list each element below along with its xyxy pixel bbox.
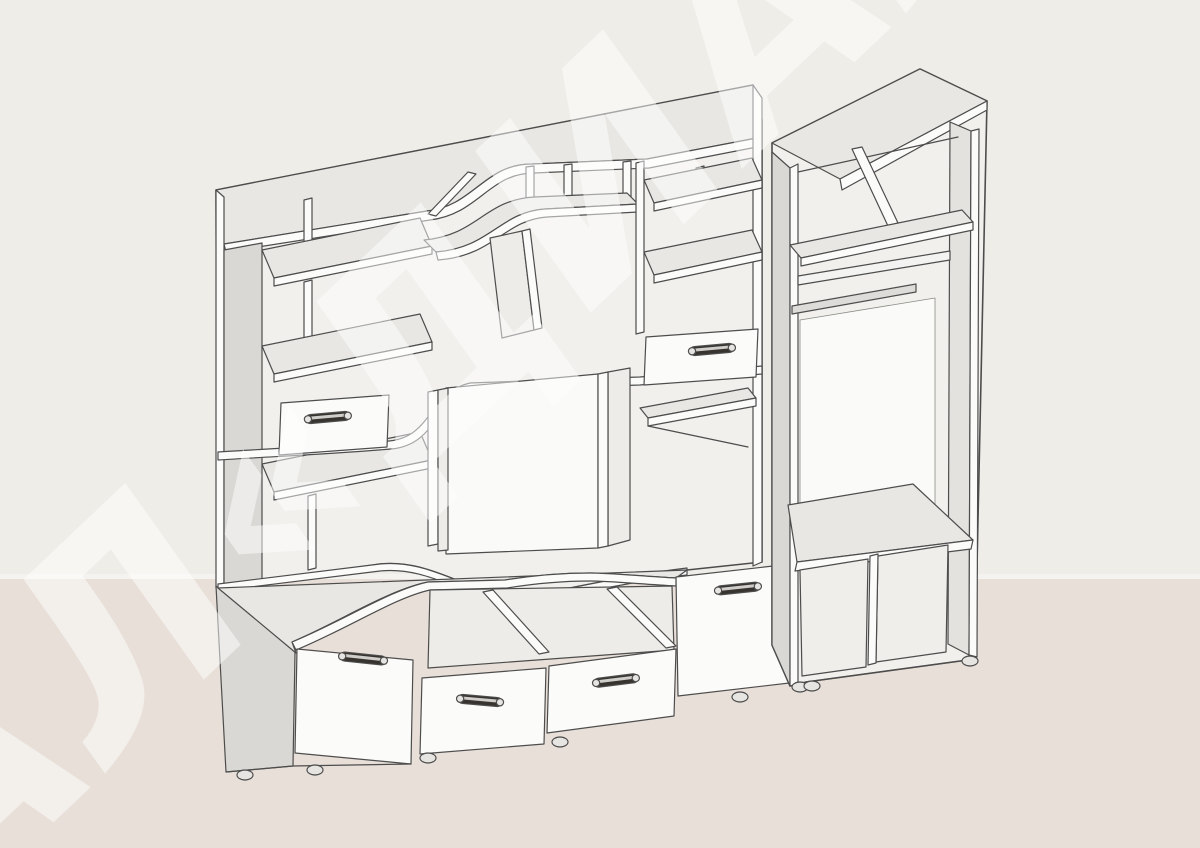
- wardrobe-right-front-edge: [969, 129, 979, 657]
- foot: [552, 737, 568, 747]
- foot: [307, 765, 323, 775]
- foot: [732, 692, 748, 702]
- center-right-wall-face: [608, 368, 630, 546]
- wardrobe-bottom-divider: [868, 554, 878, 665]
- middle-right-drawer: [644, 329, 758, 385]
- center-right-wall: [598, 372, 608, 548]
- bottom-left-door: [295, 649, 413, 764]
- foot: [962, 656, 978, 666]
- wardrobe-right-inner-face: [948, 122, 971, 655]
- bottom-drawer-left-front: [420, 668, 546, 754]
- wardrobe-left-side-face: [772, 152, 790, 686]
- wall-unit-illustration: АЛ«ДИАЛ«ДИ: [0, 0, 1200, 848]
- foot: [237, 770, 253, 780]
- furniture-drawing-canvas: АЛ«ДИАЛ«ДИ: [0, 0, 1200, 848]
- foot: [804, 681, 820, 691]
- wardrobe-left-front-edge: [790, 164, 798, 686]
- wardrobe-bottom-right-bay: [876, 545, 948, 662]
- wardrobe-bottom-left-bay: [800, 559, 868, 676]
- middle-right-drawer-front: [644, 329, 758, 385]
- foot: [420, 753, 436, 763]
